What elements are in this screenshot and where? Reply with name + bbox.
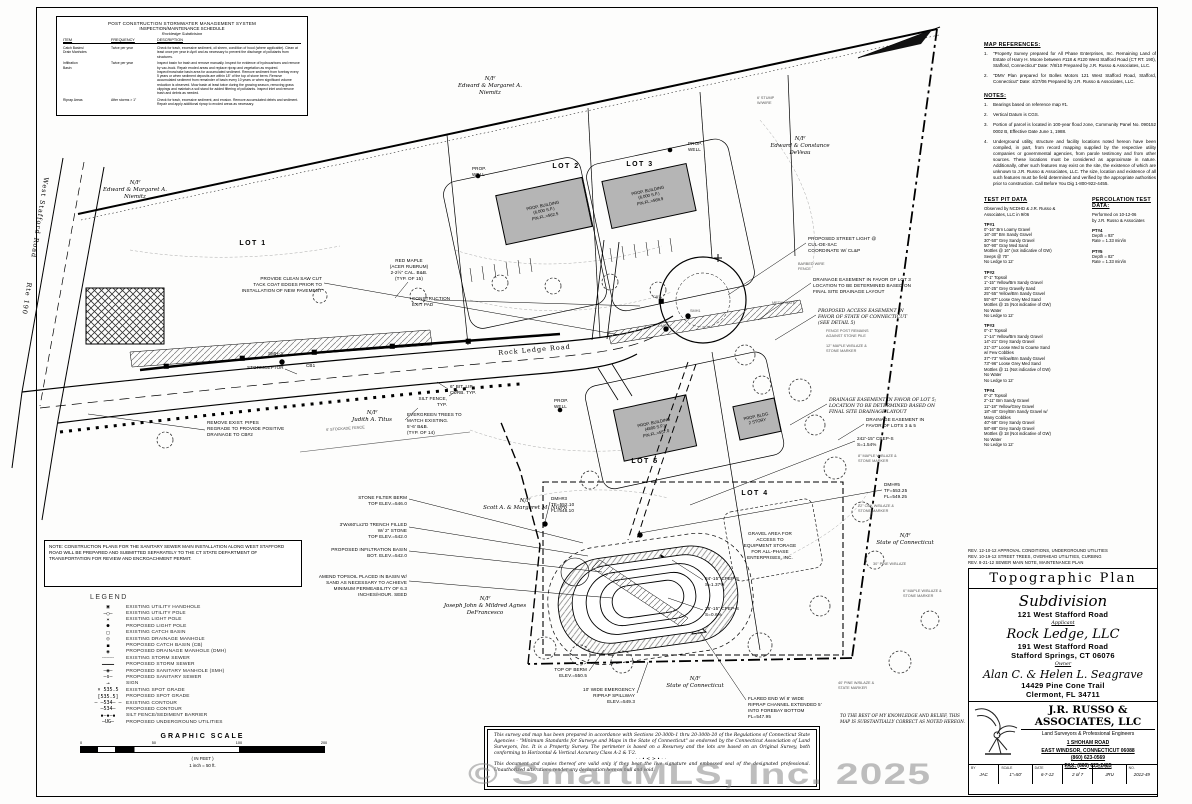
plan-annotation: PROVIDE CLEAN SAW CUT TACK COAT EDGES PR… [242, 276, 322, 294]
title-block: Topographic Plan Subdivision 121 West St… [968, 568, 1158, 795]
plan-annotation: N/F Judith A. Titus [352, 410, 392, 424]
owner-address2: Clermont, FL 34711 [971, 690, 1155, 699]
table-row: Infiltration BasinTwice per yearInspect … [63, 61, 301, 95]
test-pit-lines: Depth = 93" Rate = 1.33 min/in [1092, 233, 1154, 244]
list-item: 1.Bearings based on reference map #1. [984, 102, 1156, 108]
firm-phone: (860) 623-0569 [1021, 755, 1155, 763]
plan-annotation: West Stafford Road Rte 190 [20, 177, 50, 316]
scale-note: ( IN FEET ) 1 inch = 50 ft. [80, 756, 325, 769]
plan-annotation: 6' STUMP W/WIRE [757, 96, 774, 105]
legend-item: —534—PROPOSED CONTOUR [90, 706, 320, 712]
plan-annotation: FENCE POST REMAINS AGAINST STONE PILE [826, 329, 869, 338]
graphic-scale-title: GRAPHIC SCALE [80, 733, 325, 740]
scale-tick: 0 [80, 741, 82, 745]
plan-annotation: N/F Joseph John & Mildred Agnes DeFrance… [444, 596, 526, 617]
plan-annotation: FLARED END W/ 8' WIDE RIPRAP CHANNEL EXT… [748, 696, 822, 720]
plan-annotation: STORMCEPTOR [247, 365, 284, 371]
field-label: NO. [1129, 766, 1155, 770]
legend-item: × 535.5EXISTING SPOT GRADE [90, 687, 320, 693]
legend-label: SIGN [126, 681, 320, 686]
plan-annotation: 25'-15" CPEP-S S=0.6% [705, 606, 739, 618]
legend-label: PROPOSED STORM SEWER [126, 662, 320, 667]
plan-annotation: 12" MAPLE W/BLAZE & STONE MARKER [826, 344, 867, 353]
legend-label: PROPOSED CATCH BASIN (CB) [126, 643, 320, 648]
field-label: SHEET [1065, 766, 1090, 770]
title-field: NO.2012-49 [1127, 765, 1157, 784]
plan-annotation: PROP. BUILDING (6,000 S.F.) FIN.FL.=562.… [526, 200, 562, 223]
legend-symbol: —534— [90, 706, 126, 712]
plan-sheet: West Stafford Road Rte 190N/F Edward & M… [0, 0, 1192, 804]
legend-label: EXISTING DRAINAGE MANHOLE [126, 637, 320, 642]
legend-item: □EXISTING CATCH BASIN [90, 630, 320, 636]
plan-annotation: 40' PINE W/BLAZE & STATE MARKER [838, 681, 874, 690]
test-pit-intro: Observed by NCDHD & J.R. Russo & Associa… [984, 206, 1084, 218]
cell-description: Check for trash, excessive sediment, oil… [157, 46, 301, 59]
table-row: Catch Basins/ Drain ManholesTwice per ye… [63, 46, 301, 59]
field-value: 2012-49 [1129, 772, 1155, 777]
plan-annotation: GRAVEL AREA FOR ACCESS TO EQUIPMENT STOR… [744, 531, 797, 561]
legend-symbol: ⊸ [90, 681, 126, 687]
reference-column: MAP REFERENCES: 1."Property Survey prepa… [984, 42, 1156, 453]
sanitary-sewer-note: NOTE: CONSTRUCTION PLANS FOR THE SANITAR… [44, 540, 302, 587]
cell-item: Infiltration Basin [63, 61, 107, 95]
cell-frequency: Twice per year [111, 46, 153, 59]
map-references-title: MAP REFERENCES: [984, 42, 1156, 48]
legend-item: ✶EXISTING LIGHT POLE [90, 617, 320, 623]
test-pit-lines: 0"-1" Topsoil 1"-14" Yellow/Brn Sandy Gr… [984, 328, 1084, 383]
plan-annotation: N/F State of Connecticut [666, 676, 723, 690]
plan-annotation: CONSTRUCTION EXIT PAD [412, 296, 450, 308]
plan-annotation: N/F Edward & Margaret A. Niemitz [103, 180, 167, 201]
plan-annotation: LOT 2 [552, 163, 579, 170]
statement-paragraph-1: This survey and map has been prepared in… [494, 733, 810, 757]
plan-annotation: PROPOSED INFILTRATION BASIN BOT. ELEV.=5… [331, 547, 407, 559]
table-row: Riprap AreasAfter storms > 1"Check for t… [63, 98, 301, 107]
legend-item: ●PROPOSED LIGHT POLE [90, 623, 320, 629]
perc-test-intro: Performed on 10-12-06 by J.R. Russo & As… [1092, 212, 1154, 224]
applicant-address2: Stafford Springs, CT 06076 [971, 651, 1155, 660]
plan-annotation: 8" MAPLE W/BLAZE & STONE MARKER [858, 454, 897, 463]
plan-type-title: Topographic Plan [969, 569, 1157, 589]
plan-annotation: 6" MAPLE W/BLAZE & STONE MARKER [903, 589, 942, 598]
list-text: Portion of parcel is located in 100-year… [993, 122, 1156, 134]
legend-symbol: ▪—▪—▪ [90, 713, 126, 719]
plan-annotation: LOT 5 [631, 458, 658, 465]
plan-annotation: STONE FILTER BERM TOP ELEV.=546.0 [358, 495, 407, 507]
revision-list: REV. 12-10-12 APPROVAL CONDITIONS, UNDER… [968, 548, 1158, 566]
legend: LEGEND ▣EXISTING UTILITY HANDHOLE—○—EXIS… [90, 594, 320, 725]
plan-annotation: SMH-3 [268, 351, 283, 357]
firm-block: J.R. RUSSO & ASSOCIATES, LLC Land Survey… [969, 702, 1157, 765]
legend-symbol: —◉— [90, 668, 126, 674]
perc-test-title: PERCOLATION TEST DATA: [1092, 197, 1154, 209]
plan-annotation: PROPOSED STREET LIGHT @ CUL-DE-SAC COORD… [808, 236, 876, 254]
table-subdivision: Rockledge Subdivision [63, 31, 301, 36]
test-pit-lines: 0"-16" Brn Loamy Gravel 16"-30" Brn Sand… [984, 227, 1084, 265]
plan-annotation: 6" BIT. LIP CURB. TYP. [450, 384, 476, 396]
legend-symbol: ◼ [90, 643, 126, 649]
legend-item: —UG—PROPOSED UNDERGROUND UTILITIES [90, 719, 320, 725]
plan-annotation: PROP. WELL [472, 166, 486, 178]
owner-name: Alan C. & Helen L. Seagrave [971, 668, 1155, 681]
plan-annotation: PROP. BLDG. 2 STORY [743, 411, 771, 427]
field-value: 6-7-12 [1035, 772, 1060, 777]
field-value: 2 of 7 [1065, 772, 1090, 777]
applicant-address1: 191 West Stafford Road [971, 642, 1155, 651]
list-text: "DMV Plan prepared for Bolles Motors 121… [993, 73, 1156, 85]
legend-item: ◉PROPOSED DRAINAGE MANHOLE (DMH) [90, 649, 320, 655]
title-field: SHEET2 of 7 [1063, 765, 1093, 784]
field-value: JRU [1095, 772, 1123, 777]
subdivision-title: Subdivision [971, 592, 1155, 610]
legend-symbol: ┄┄┄┄ [90, 655, 126, 661]
test-pit: PT#4Depth = 93" Rate = 1.33 min/in [1092, 228, 1154, 244]
legend-item: ▣EXISTING UTILITY HANDHOLE [90, 604, 320, 610]
list-item: 2.Vertical Datum is CGS. [984, 112, 1156, 118]
plan-annotation: BARBED WIRE FENCE [798, 262, 825, 271]
test-pit-lines: 0"-2" Topsoil 2"-11" Brn Sandy Gravel 11… [984, 393, 1084, 448]
legend-label: PROPOSED UNDERGROUND UTILITIES [126, 720, 320, 725]
plan-annotation: PROPOSED ACCESS EASEMENT IN FAVOR OF STA… [818, 309, 907, 327]
test-pit-lines: Depth = 82" Rate = 1.33 min/in [1092, 254, 1154, 265]
scale-tick: 100 [236, 741, 242, 745]
plan-annotation: EVERGREEN TREES TO MATCH EXISTING. 5'-6'… [407, 412, 462, 436]
cell-frequency: Twice per year [111, 61, 153, 95]
plan-annotation: DMH2 [658, 324, 669, 329]
legend-symbol: × 535.5 [90, 687, 126, 693]
test-pit-section: TEST PIT DATA Observed by NCDHD & J.R. R… [984, 197, 1156, 452]
firm-address2: EAST WINDSOR, CONNECTICUT 06088 [1021, 748, 1155, 756]
legend-symbol: ◉ [90, 649, 126, 655]
plan-annotation: 3'Wx60'Lx2'D TRENCH FILLED W/ 2" STONE T… [340, 522, 407, 540]
plan-annotation: METAL GATE [772, 301, 795, 306]
legend-label: EXISTING SPOT GRADE [126, 688, 320, 693]
legend-symbol: —○— [90, 611, 126, 617]
legend-label: EXISTING CONTOUR [126, 701, 320, 706]
plan-annotation: 30" PINE W/BLAZE [873, 562, 906, 567]
legend-item: ◼PROPOSED CATCH BASIN (CB) [90, 642, 320, 648]
watermark: © SmartMLS, Inc. 2025 [468, 758, 931, 792]
plan-annotation: PROP. BUILDING (6,000 S.F.) FIN.FL.=569.… [631, 185, 667, 208]
legend-label: EXISTING UTILITY HANDHOLE [126, 605, 320, 610]
scale-tick: 200 [321, 741, 327, 745]
plan-annotation: DRAINAGE EASEMENT IN FAVOR OF LOT 5; LOC… [829, 398, 936, 416]
list-number: 4. [984, 139, 993, 188]
legend-item: [535.5]PROPOSED SPOT GRADE [90, 693, 320, 699]
perc-test-list: PT#4Depth = 93" Rate = 1.33 min/inPT#5De… [1092, 228, 1154, 265]
plan-annotation: N/F Edward & Margaret A. Niemitz [458, 76, 522, 97]
plan-annotation: 10' WIDE EMERGENCY RIPRAP SPILLWAY ELEV.… [583, 687, 635, 705]
list-text: Underground utility, structure and facil… [993, 139, 1156, 188]
cell-item: Catch Basins/ Drain Manholes [63, 46, 107, 59]
cell-description: Check for trash, excessive sediment, and… [157, 98, 301, 107]
legend-symbol: ━━━━ [90, 662, 126, 668]
legend-item: ━━━━PROPOSED STORM SEWER [90, 662, 320, 668]
field-label: DATE [1035, 766, 1060, 770]
plan-annotation: LOT 1 [239, 240, 266, 247]
list-number: 2. [984, 112, 993, 118]
legend-symbol: ✶ [90, 617, 126, 623]
applicant-label: Applicant [971, 621, 1155, 626]
plan-annotation: LOT 4 [741, 490, 768, 497]
legend-item: ▪—▪—▪SILT FENCE/SEDIMENT BARRIER [90, 713, 320, 719]
legend-symbol: ● [90, 623, 126, 629]
plan-annotation: DRAINAGE EASEMENT IN FAVOR OF LOT 3 LOCA… [813, 277, 911, 295]
cell-frequency: After storms > 1" [111, 98, 153, 107]
scale-tick: 50 [152, 741, 156, 745]
legend-label: PROPOSED SANITARY SEWER [126, 675, 320, 680]
eagle-logo [971, 704, 1021, 758]
plan-annotation: LOT 3 [626, 161, 653, 168]
legend-symbol: [535.5] [90, 694, 126, 700]
title-field: SCALE1"=50' [999, 765, 1032, 784]
list-item: 2."DMV Plan prepared for Bolles Motors 1… [984, 73, 1156, 85]
plan-annotation: CB7 [653, 295, 660, 300]
legend-title: LEGEND [90, 594, 320, 601]
plan-annotation: DMH#5 TF=553.25 FL=549.25 [884, 482, 907, 500]
notes-title: NOTES: [984, 93, 1156, 99]
plan-annotation: PROP. BUILDING (4800 S.F.) FIN.FL.=557.0 [637, 417, 673, 440]
plan-annotation: AMEND TOPSOIL PLACED IN BASIN W/ SAND AS… [319, 574, 407, 598]
plan-annotation: Rock Ledge Road [498, 343, 571, 357]
plan-annotation: TO THE BEST OF MY KNOWLEDGE AND BELIEF, … [840, 713, 965, 724]
firm-name: J.R. RUSSO & ASSOCIATES, LLC [1021, 704, 1155, 730]
test-pit-list: TP#10"-16" Brn Loamy Gravel 16"-30" Brn … [984, 222, 1084, 448]
list-number: 1. [984, 102, 993, 108]
legend-label: EXISTING CATCH BASIN [126, 630, 320, 635]
legend-label: PROPOSED CONTOUR [126, 707, 320, 712]
title-field: BYJAC [969, 765, 999, 784]
field-value: 1"=50' [1001, 772, 1029, 777]
plan-annotation: REMOVE EXIST. PIPES REGRADE TO PROVIDE P… [207, 420, 284, 438]
legend-symbol: —s— [90, 674, 126, 680]
legend-label: EXISTING UTILITY POLE [126, 611, 320, 616]
list-item: 3.Portion of parcel is located in 100-ye… [984, 122, 1156, 134]
list-number: 2. [984, 73, 993, 85]
legend-symbol: ◎ [90, 636, 126, 642]
list-text: Vertical Datum is CGS. [993, 112, 1156, 118]
plan-annotation: N/F Edward & Constance DeVeau [770, 136, 829, 157]
legend-label: SILT FENCE/SEDIMENT BARRIER [126, 713, 320, 718]
legend-label: EXISTING LIGHT POLE [126, 617, 320, 622]
title-block-main: Subdivision 121 West Stafford Road Appli… [969, 589, 1157, 702]
test-pit-lines: 0"-1" Topsoil 1"-15" Yellow/Brn Sandy Gr… [984, 275, 1084, 319]
list-number: 1. [984, 51, 993, 69]
plan-annotation: 242'-15" CPEP-S S=1.54% [857, 436, 894, 448]
site-address: 121 West Stafford Road [971, 610, 1155, 619]
table-header: ITEM FREQUENCY DESCRIPTION [63, 38, 301, 44]
list-text: "Property Survey prepared for All Phase … [993, 51, 1156, 69]
legend-label: PROPOSED SANITARY MANHOLE (SMH) [126, 669, 320, 674]
plan-annotation: 22" OAK W/BLAZE & STONE MARKER [858, 504, 894, 513]
owner-address1: 14429 Pine Cone Trail [971, 681, 1155, 690]
plan-annotation: CB1 [306, 363, 315, 369]
owner-label: Owner [971, 662, 1155, 667]
plan-annotation: RED MAPLE (ACER RUBRUM) 2-2½" CAL. B&B. … [390, 258, 429, 282]
legend-item: ┄┄┄┄EXISTING STORM SEWER [90, 655, 320, 661]
legend-item: —○—EXISTING UTILITY POLE [90, 610, 320, 616]
legend-label: PROPOSED SPOT GRADE [126, 694, 320, 699]
test-pit: PT#5Depth = 82" Rate = 1.33 min/in [1092, 249, 1154, 265]
plan-annotation: SMH1 [690, 309, 701, 314]
cell-description: Inspect basin for trash and remove manua… [157, 61, 301, 95]
field-label: BY [971, 766, 996, 770]
list-item: 4.Underground utility, structure and fac… [984, 139, 1156, 188]
plan-annotation: N/F State of Connecticut [876, 533, 933, 547]
legend-symbol: – –534– – [90, 700, 126, 706]
legend-label: PROPOSED LIGHT POLE [126, 624, 320, 629]
list-text: Bearings based on reference map #1. [993, 102, 1156, 108]
applicant-name: Rock Ledge, LLC [971, 627, 1155, 642]
legend-symbol: ▣ [90, 604, 126, 610]
legend-item: – –534– –EXISTING CONTOUR [90, 700, 320, 706]
title-field: DATE6-7-12 [1033, 765, 1063, 784]
legend-items: ▣EXISTING UTILITY HANDHOLE—○—EXISTING UT… [90, 604, 320, 725]
graphic-scale: GRAPHIC SCALE 050100200 ( IN FEET ) 1 in… [80, 733, 325, 769]
scale-bar: 050100200 [80, 746, 325, 753]
legend-item: —◉—PROPOSED SANITARY MANHOLE (SMH) [90, 668, 320, 674]
test-pit: TP#10"-16" Brn Loamy Gravel 16"-30" Brn … [984, 222, 1084, 265]
test-pit: TP#20"-1" Topsoil 1"-15" Yellow/Brn Sand… [984, 270, 1084, 319]
legend-label: EXISTING STORM SEWER [126, 656, 320, 661]
legend-symbol: —UG— [90, 719, 126, 725]
field-value: JAC [971, 772, 996, 777]
legend-item: —s—PROPOSED SANITARY SEWER [90, 674, 320, 680]
field-label: CHECKED [1095, 766, 1123, 770]
test-pit: TP#40"-2" Topsoil 2"-11" Brn Sandy Grave… [984, 388, 1084, 448]
test-pit-title: TEST PIT DATA [984, 197, 1084, 203]
plan-annotation: SILT FENCE, TYP. [419, 396, 448, 408]
title-field: CHECKEDJRU [1093, 765, 1126, 784]
cell-item: Riprap Areas [63, 98, 107, 107]
plan-annotation: 6' STOCKADE FENCE [326, 425, 365, 432]
maintenance-schedule-table: POST CONSTRUCTION STORMWATER MANAGEMENT … [56, 16, 308, 116]
legend-item: ◎EXISTING DRAINAGE MANHOLE [90, 636, 320, 642]
plan-annotation: 84'-15" CPEP-S S=1.37% [705, 576, 739, 588]
title-block-fields: BYJACSCALE1"=50'DATE6-7-12SHEET2 of 7CHE… [969, 765, 1157, 784]
test-pit: TP#30"-1" Topsoil 1"-14" Yellow/Brn Sand… [984, 323, 1084, 383]
list-item: 1."Property Survey prepared for All Phas… [984, 51, 1156, 69]
map-references-list: 1."Property Survey prepared for All Phas… [984, 51, 1156, 85]
plan-annotation: DMH#3 TF=552.10 FL=548.10 [551, 496, 574, 514]
revision-line: REV. 8-21-12 SEWER MAIN NOTE, MAINTENANC… [968, 560, 1158, 566]
plan-annotation: TOP OF BERM ELEV.=550.5 [554, 667, 587, 679]
legend-item: ⊸SIGN [90, 681, 320, 687]
plan-annotation: DRAINAGE EASEMENT IN FAVOR OF LOTS 3 & 5 [866, 417, 924, 429]
field-label: SCALE [1001, 766, 1029, 770]
firm-subtitle: Land Surveyors & Professional Engineers [1021, 731, 1155, 737]
list-number: 3. [984, 122, 993, 134]
firm-address1: 1 SHOHAM ROAD [1021, 740, 1155, 748]
legend-label: PROPOSED DRAINAGE MANHOLE (DMH) [126, 649, 320, 654]
plan-annotation: PROP. WELL [688, 141, 702, 153]
legend-symbol: □ [90, 630, 126, 636]
maintenance-rows: Catch Basins/ Drain ManholesTwice per ye… [63, 46, 301, 106]
notes-list: 1.Bearings based on reference map #1.2.V… [984, 102, 1156, 187]
plan-annotation: PROP. WELL [554, 398, 568, 410]
